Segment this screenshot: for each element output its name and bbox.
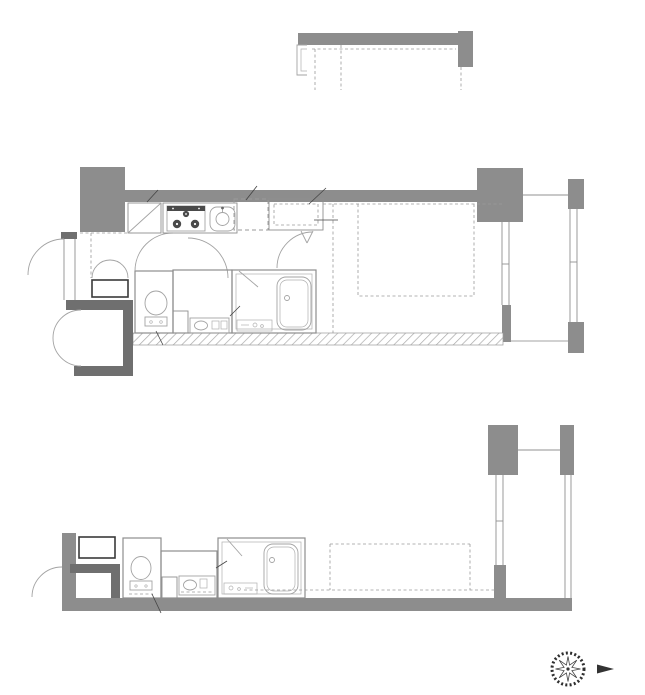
- wall-mb: [123, 300, 133, 376]
- bathtub-icon: [277, 277, 311, 330]
- mb-door-arc-1f: [32, 567, 62, 597]
- bath-door-diagonal-1f: [227, 539, 242, 556]
- sink-icon: [210, 207, 235, 231]
- room-door-arc: [277, 232, 313, 268]
- closet-fold-door: [307, 231, 313, 243]
- wall-mb-1f: [111, 564, 120, 598]
- balcony-rail-post-bottom: [568, 322, 584, 353]
- stove-icon: [167, 206, 205, 231]
- washer-diagonal: [128, 203, 161, 233]
- washroom-1f: [161, 551, 217, 598]
- wall-bracket-11f: [297, 45, 307, 75]
- floorplan-page: [0, 0, 645, 695]
- wall-bracket-inner-11f: [301, 49, 307, 71]
- wall-pillar-11f: [458, 31, 473, 67]
- mb-door-arc: [53, 338, 81, 366]
- floorplan-drawing: [0, 0, 645, 695]
- wall-window-sill-1f: [494, 565, 506, 598]
- bathroom-inner: [236, 274, 312, 329]
- compass-rose: [552, 653, 614, 685]
- toilet-room-1f: [123, 538, 161, 598]
- pipe-space-box: [173, 311, 188, 333]
- plan-11f-partial: [297, 31, 473, 90]
- washbasin-icon-1f: [179, 576, 215, 595]
- washbasin-icon: [190, 318, 229, 333]
- wall-band-11f: [298, 33, 463, 45]
- entrance-door-arc: [28, 239, 64, 275]
- fridge-box: [234, 199, 268, 230]
- shoe-door-arc: [92, 260, 110, 278]
- bathtub-icon-1f: [264, 544, 298, 594]
- bathroom-inner-1f: [222, 542, 301, 594]
- wall-mb: [74, 366, 133, 376]
- wall-bottom-band-1f: [62, 598, 572, 611]
- bathroom-1f: [218, 538, 305, 598]
- washroom: [173, 270, 232, 333]
- wall-pillar-1f: [488, 425, 518, 475]
- wall-pillar-1f: [560, 425, 574, 475]
- wall-top-band: [112, 190, 480, 202]
- shoe-box-1f: [79, 537, 115, 558]
- shoe-door-arc: [110, 260, 128, 278]
- wall-hatched-bottom: [133, 333, 503, 345]
- toilet-icon-1f: [129, 557, 153, 595]
- toilet-icon: [145, 291, 167, 326]
- washroom-door-arc: [188, 238, 228, 278]
- bath-counter-icon-1f: [224, 583, 257, 594]
- closet-inner-dashed: [274, 204, 318, 225]
- wall-mb: [66, 300, 133, 310]
- room-dashed-rect: [358, 204, 474, 296]
- pipe-space-box-1f: [162, 577, 177, 598]
- bathroom: [232, 270, 316, 333]
- wall-mb-1f: [70, 564, 118, 573]
- wall-stub: [61, 232, 77, 239]
- plan-1f-partial: [32, 425, 574, 613]
- mb-door-arc: [53, 310, 81, 338]
- toilet-door-arc: [135, 233, 173, 271]
- north-arrow: [597, 665, 614, 674]
- wall-pillar-right: [477, 168, 523, 222]
- balcony-rail-post-top: [568, 179, 584, 209]
- plan-main: [28, 167, 584, 376]
- compass-center-dot: [566, 667, 569, 670]
- shoe-box: [92, 280, 128, 297]
- bath-door-diagonal: [239, 271, 258, 287]
- bath-counter-icon: [237, 320, 272, 331]
